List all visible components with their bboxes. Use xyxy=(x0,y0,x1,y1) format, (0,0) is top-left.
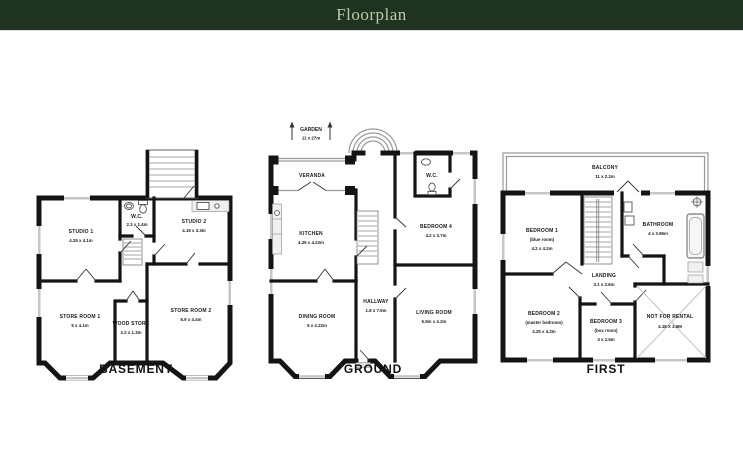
room-label-garden: GARDEN xyxy=(300,127,322,133)
room-label-woodstore: WOOD STORE xyxy=(113,321,150,327)
first-floorplan: BALCONY 11 x 2.2m xyxy=(500,144,712,389)
page-title: Floorplan xyxy=(336,5,407,25)
room-label-store1: STORE ROOM 1 xyxy=(60,314,101,320)
floor-label-ground: GROUND xyxy=(268,362,478,376)
room-dims-store1: 5 x 4.1m xyxy=(71,323,88,328)
room-label-bedroom4: BEDROOM 4 xyxy=(420,224,452,230)
garden-arrow-icon xyxy=(328,122,333,128)
room-label-veranda: VERANDA xyxy=(299,173,325,179)
basement-kitchenette xyxy=(192,201,229,212)
balcony-structure: BALCONY 11 x 2.2m xyxy=(503,153,708,193)
room-label-bedroom2: BEDROOM 2 xyxy=(528,311,560,317)
room-sub-bedroom2: (master bedroom) xyxy=(525,320,563,325)
ground-staircase xyxy=(357,211,378,264)
room-sub-bedroom1: (blue room) xyxy=(530,237,555,242)
room-label-hallway: HALLWAY xyxy=(363,299,389,305)
page-header: Floorplan xyxy=(0,0,743,31)
room-label-studio2: STUDIO 2 xyxy=(182,219,207,225)
room-dims-hallway: 1.8 x 7.5m xyxy=(366,308,387,313)
room-sub-bedroom3: (box room) xyxy=(595,328,618,333)
room-dims-landing: 3.1 x 2.6m xyxy=(594,282,615,287)
room-dims-studio2: 4.15 x 3.3m xyxy=(182,228,206,233)
room-dims-kitchen: 4.25 x 4.22m xyxy=(298,240,324,245)
room-dims-bedroom3: 3 x 2.5m xyxy=(597,337,614,342)
floor-label-first: FIRST xyxy=(500,362,712,376)
room-dims-bedroom2: 4.25 x 4.2m xyxy=(532,329,556,334)
room-label-store2: STORE ROOM 2 xyxy=(171,308,212,314)
room-dims-balcony: 11 x 2.2m xyxy=(595,174,615,179)
room-label-balcony: BALCONY xyxy=(592,165,619,171)
room-label-bedroom1: BEDROOM 1 xyxy=(526,228,558,234)
room-label-bedroom3: BEDROOM 3 xyxy=(590,319,622,325)
room-dims-wc: 2.3 x 1.4m xyxy=(127,222,148,227)
veranda-structure: VERANDA xyxy=(269,156,356,196)
not-for-rental-cross xyxy=(637,286,706,358)
kitchen-counter xyxy=(273,204,282,254)
room-dims-bedroom1: 4.2 x 4.2m xyxy=(532,246,553,251)
floor-label-basement: BASEMENT xyxy=(36,362,236,376)
ground-floorplan: GARDEN 11 x 27m VERANDA xyxy=(268,119,478,384)
room-label-dining: DINING ROOM xyxy=(299,314,336,320)
garden-arrow-icon xyxy=(290,122,295,128)
entrance-steps xyxy=(349,129,397,153)
room-dims-store2: 5.9 x 4.4m xyxy=(181,317,202,322)
room-dims-living: 5.9m x 4.2m xyxy=(422,319,447,324)
room-dims-studio1: 4.25 x 4.1m xyxy=(69,238,93,243)
room-label-notforrental: NOT FOR RENTAL xyxy=(647,314,694,320)
room-dims-bedroom4: 4.2 x 3.7m xyxy=(426,233,447,238)
room-label-living: LIVING ROOM xyxy=(416,310,452,316)
basement-floorplan: STUDIO 1 4.25 x 4.1m W.C. 2.3 x 1.4m STU… xyxy=(36,141,236,391)
shower-icon xyxy=(691,196,703,208)
room-dims-notforrental: 4.18 X 3.6M xyxy=(658,324,682,329)
floorplan-canvas: STUDIO 1 4.25 x 4.1m W.C. 2.3 x 1.4m STU… xyxy=(0,31,743,450)
basement-internal-stairs xyxy=(123,239,142,265)
room-dims-woodstore: 2.2 x 1.3m xyxy=(121,330,142,335)
room-label-kitchen: KITCHEN xyxy=(299,231,323,237)
room-label-studio1: STUDIO 1 xyxy=(69,229,94,235)
room-dims-bathroom: 4 x 3.95m xyxy=(648,231,668,236)
room-label-wc-ground: W.C. xyxy=(426,173,438,179)
first-staircase xyxy=(584,197,612,264)
room-label-bathroom: BATHROOM xyxy=(643,222,674,228)
basement-external-stairs xyxy=(146,150,198,198)
room-dims-garden: 11 x 27m xyxy=(302,136,320,141)
room-label-wc: W.C. xyxy=(131,214,143,220)
room-dims-dining: 5 x 4.22m xyxy=(307,323,327,328)
garden-annotation: GARDEN 11 x 27m xyxy=(290,122,333,141)
room-label-landing: LANDING xyxy=(592,273,616,279)
